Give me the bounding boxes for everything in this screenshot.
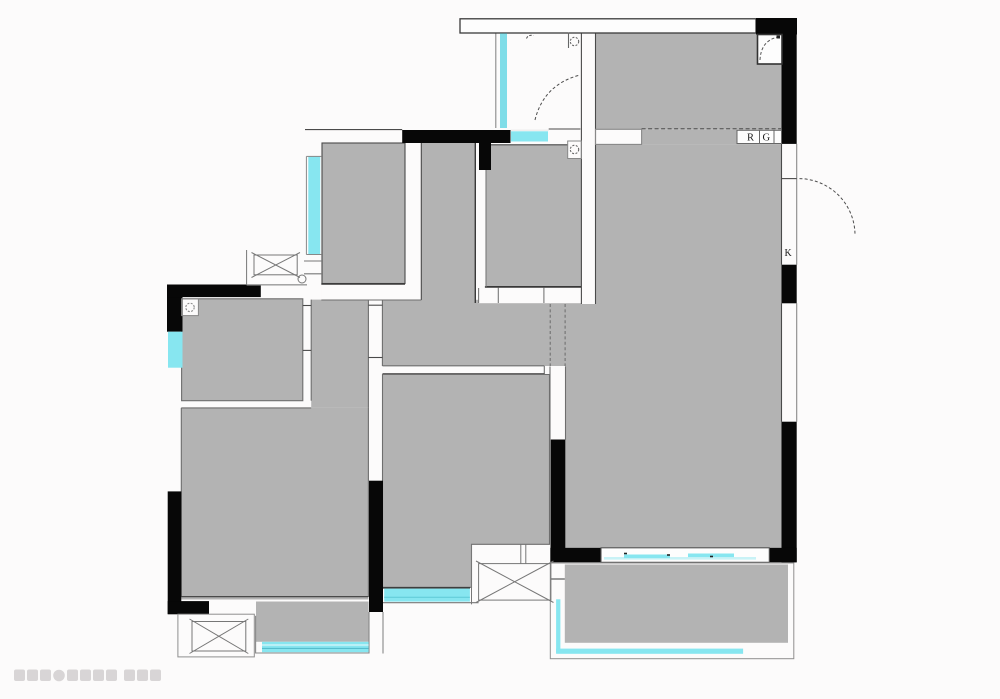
svg-text:G: G: [763, 133, 771, 144]
svg-text:K: K: [785, 248, 793, 259]
svg-text:R: R: [747, 133, 754, 144]
